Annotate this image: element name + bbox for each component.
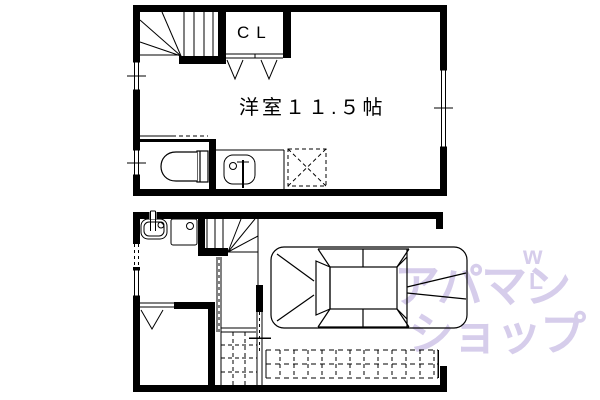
water-heater-icon [171, 219, 197, 245]
floorplan-drawing [0, 0, 600, 400]
window-icon [127, 62, 146, 90]
closet-label: CL [237, 23, 273, 43]
entrance-tile-floor [221, 332, 257, 385]
closet-door-icon [227, 60, 277, 79]
car-icon [271, 247, 467, 328]
entrance-step [221, 328, 256, 332]
washbasin-icon [216, 150, 284, 189]
stairs-icon [140, 12, 226, 64]
window-icon [434, 70, 453, 147]
hall-divider-wall [217, 257, 221, 332]
lower-outer-walls [133, 212, 447, 392]
door-icon [140, 303, 174, 329]
washer-pan-icon [288, 149, 326, 186]
garage-tile-strip [266, 350, 438, 378]
lower-floor-plan [133, 211, 467, 392]
toilet-icon [161, 151, 208, 182]
floorplan-canvas: アパマン ショップ w L [0, 0, 600, 400]
vent-window-icon [133, 244, 140, 296]
window-icon [127, 150, 146, 175]
room-size-label: 洋室１１.５帖 [239, 91, 386, 120]
garage-side-wall [249, 312, 271, 385]
